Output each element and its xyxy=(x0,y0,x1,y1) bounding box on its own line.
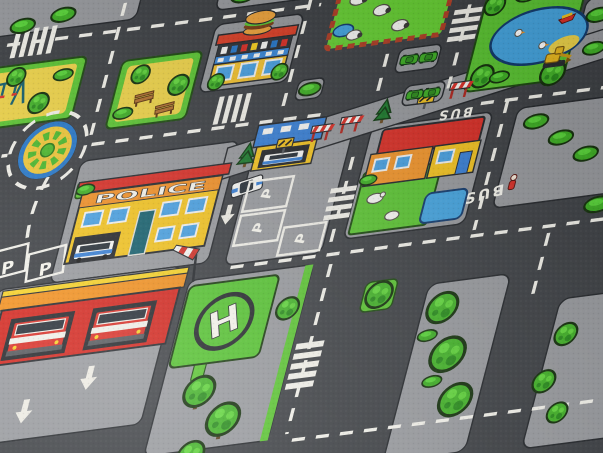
rug-scene-svg: P P BUS BUS xyxy=(0,0,603,453)
play-rug-photo: P P BUS BUS xyxy=(0,0,603,453)
shadow-overlay xyxy=(0,0,603,453)
